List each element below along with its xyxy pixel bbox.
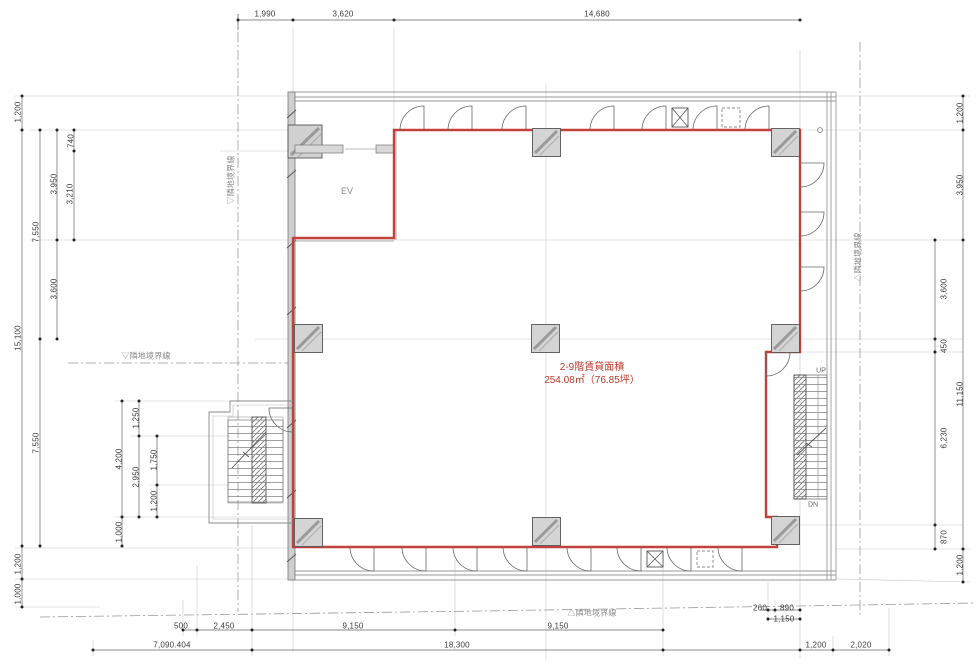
dimension-label: 1,200 bbox=[956, 102, 965, 123]
dimension-label: 260 bbox=[753, 604, 767, 613]
site-boundary-lines bbox=[40, 14, 975, 617]
stairs-up-label: UP bbox=[816, 368, 826, 375]
dimension-label: 7,550 bbox=[32, 221, 41, 242]
dimension-label: 1,200 bbox=[956, 554, 965, 575]
boundary-line-label: ▽隣地境界線 bbox=[121, 351, 170, 362]
dimension-label: 7,090.404 bbox=[153, 641, 190, 650]
elevator-label: EV bbox=[341, 186, 353, 196]
door-top-5 bbox=[642, 106, 666, 130]
dimension-label: 1,000 bbox=[115, 521, 124, 542]
dimension-label: 1,200 bbox=[805, 641, 826, 650]
door-bottom-2 bbox=[402, 547, 426, 571]
dimension-label: 1,000 bbox=[14, 583, 23, 604]
columns bbox=[295, 129, 800, 547]
dimension-label: 3,950 bbox=[956, 174, 965, 195]
dimension-label: 7,550 bbox=[32, 432, 41, 453]
boundary-line-label: ▽隣地境界線 bbox=[226, 155, 237, 204]
dimension-label: 14,680 bbox=[584, 10, 610, 19]
dimension-label: 890 bbox=[780, 604, 794, 613]
door-right-1 bbox=[800, 163, 824, 187]
dimension-label: 3,950 bbox=[50, 173, 59, 194]
staircase-right bbox=[794, 375, 827, 499]
boundary-line-label: △隣地境界線 bbox=[853, 232, 864, 281]
door-top-6 bbox=[693, 106, 717, 130]
door-bottom-4 bbox=[503, 547, 527, 571]
dimension-label: 15,100 bbox=[14, 325, 23, 351]
dimension-label: 6,230 bbox=[940, 427, 949, 448]
rental-area-value: 254.08㎡（76.85坪） bbox=[544, 374, 640, 387]
dimension-label: 870 bbox=[940, 530, 949, 544]
dimension-lines bbox=[22, 14, 963, 650]
dimension-label: 3,600 bbox=[50, 278, 59, 299]
door-bottom-3 bbox=[453, 547, 477, 571]
dimension-label: 2,450 bbox=[213, 622, 234, 631]
dimension-label: 3,620 bbox=[332, 10, 353, 19]
floor-plan-drawing bbox=[0, 0, 980, 664]
door-right-2 bbox=[800, 212, 824, 236]
dimension-label: 3,210 bbox=[66, 183, 75, 204]
door-bottom-1 bbox=[350, 547, 374, 571]
door-top-1 bbox=[400, 106, 424, 130]
dimension-label: 2,950 bbox=[132, 466, 141, 487]
dimension-label: 2,020 bbox=[850, 641, 871, 650]
dimension-label: 740 bbox=[67, 134, 76, 148]
stairs-down-label: DN bbox=[808, 502, 818, 509]
dimension-label: 1,150 bbox=[773, 615, 794, 624]
dimension-label: 18,300 bbox=[444, 641, 470, 650]
door-bottom-5 bbox=[567, 547, 591, 571]
dimension-label: 4,200 bbox=[115, 448, 124, 469]
dimension-label: 1,200 bbox=[14, 101, 23, 122]
floor-plan-canvas: 1,9903,62014,6801,2007,5503,9507403,2103… bbox=[0, 0, 980, 664]
rental-area-title: 2-9階賃貸面積 bbox=[544, 361, 640, 374]
door-bottom-7 bbox=[667, 547, 691, 571]
dimension-label: 1,200 bbox=[14, 553, 23, 574]
door-bottom-6 bbox=[617, 547, 641, 571]
dimension-label: 1,750 bbox=[150, 449, 159, 470]
dimension-label: 11,150 bbox=[956, 381, 965, 406]
dimension-label: 9,150 bbox=[547, 622, 568, 631]
dimension-label: 3,600 bbox=[940, 278, 949, 299]
dimension-label: 500 bbox=[174, 622, 188, 631]
staircase-exterior bbox=[209, 401, 293, 523]
door-bottom-8 bbox=[718, 547, 742, 571]
door-top-3 bbox=[502, 106, 526, 130]
elevator-room bbox=[288, 125, 396, 241]
door-right-3 bbox=[800, 267, 824, 291]
boundary-line-label: △隣地境界線 bbox=[567, 608, 616, 619]
door-top-2 bbox=[448, 106, 472, 130]
exterior-walls bbox=[287, 92, 836, 580]
rental-area-label: 2-9階賃貸面積 254.08㎡（76.85坪） bbox=[544, 361, 640, 387]
dimension-label: 9,150 bbox=[342, 622, 363, 631]
dimension-label: 1,990 bbox=[254, 10, 275, 19]
dimension-ticks bbox=[21, 19, 965, 652]
door-top-4 bbox=[590, 106, 614, 130]
dimension-label: 450 bbox=[940, 339, 949, 353]
dimension-label: 1,250 bbox=[132, 407, 141, 428]
dimension-label: 1,200 bbox=[150, 490, 159, 511]
boundary-line-bottom bbox=[40, 603, 975, 617]
door-right-stair bbox=[766, 352, 790, 376]
door-top-7 bbox=[745, 106, 769, 130]
